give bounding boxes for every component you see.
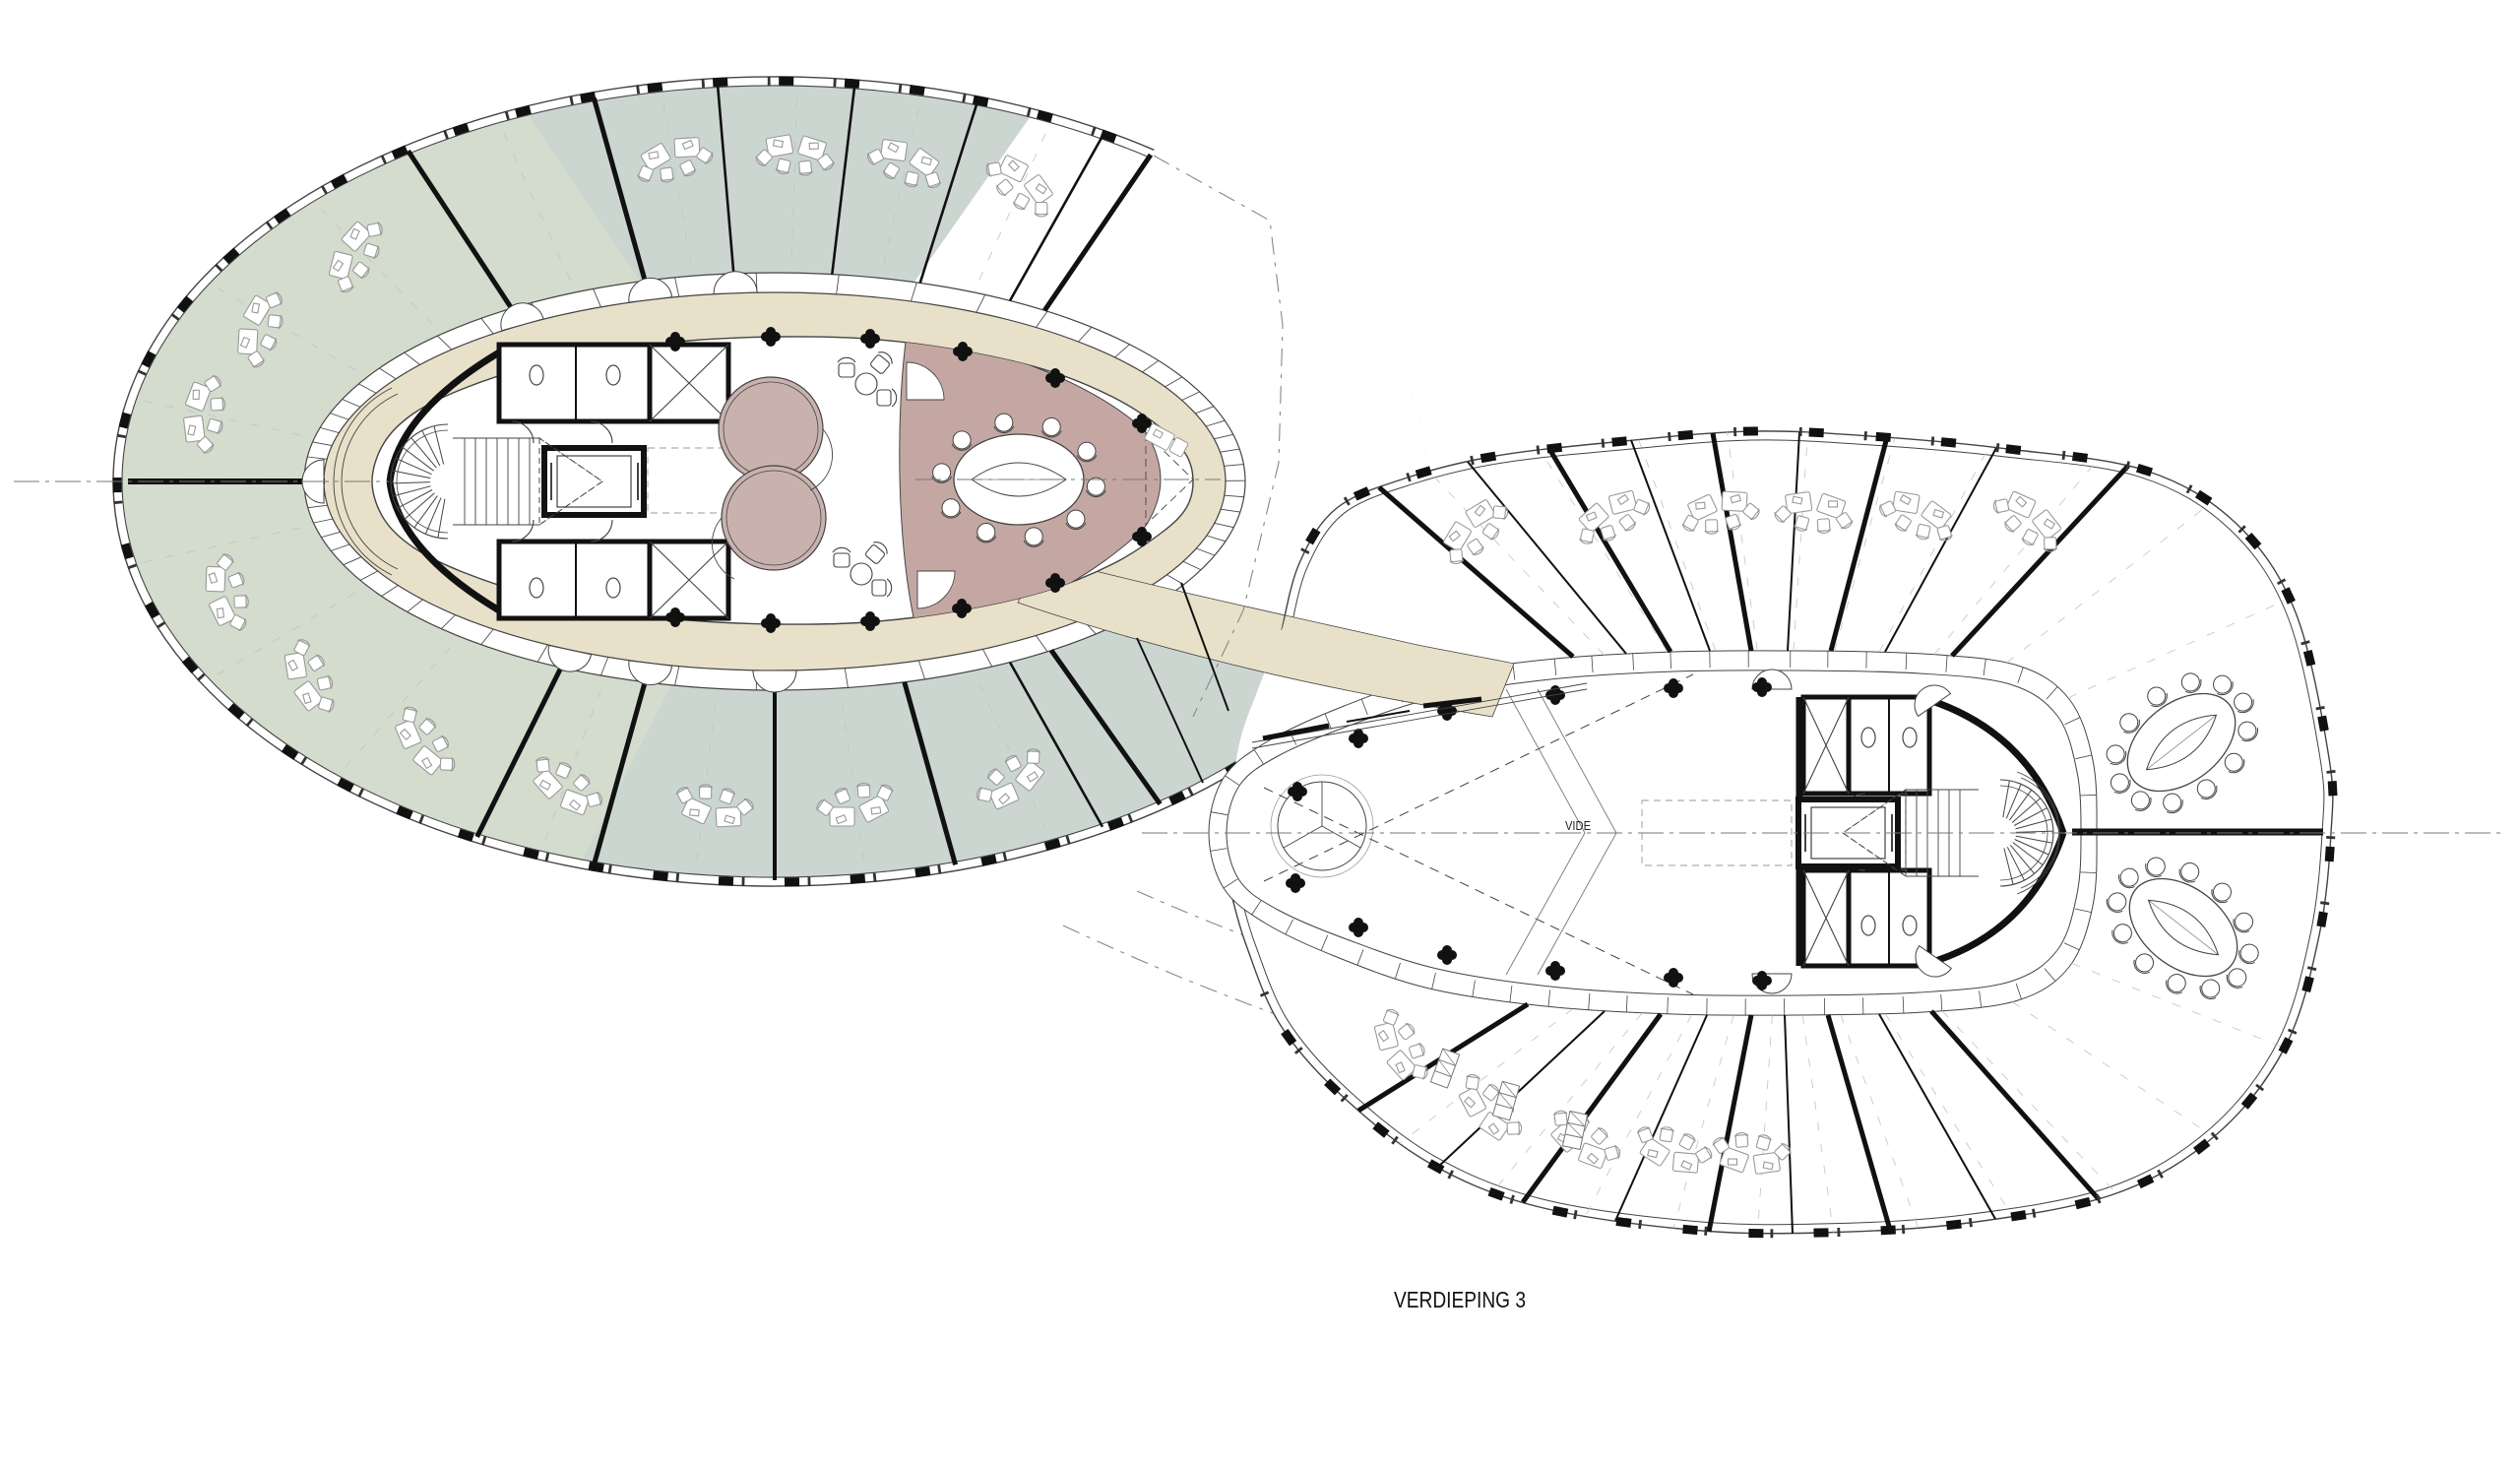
svg-text:VERDIEPING 3: VERDIEPING 3 xyxy=(1394,1287,1526,1312)
svg-text:VIDE: VIDE xyxy=(1565,818,1591,833)
